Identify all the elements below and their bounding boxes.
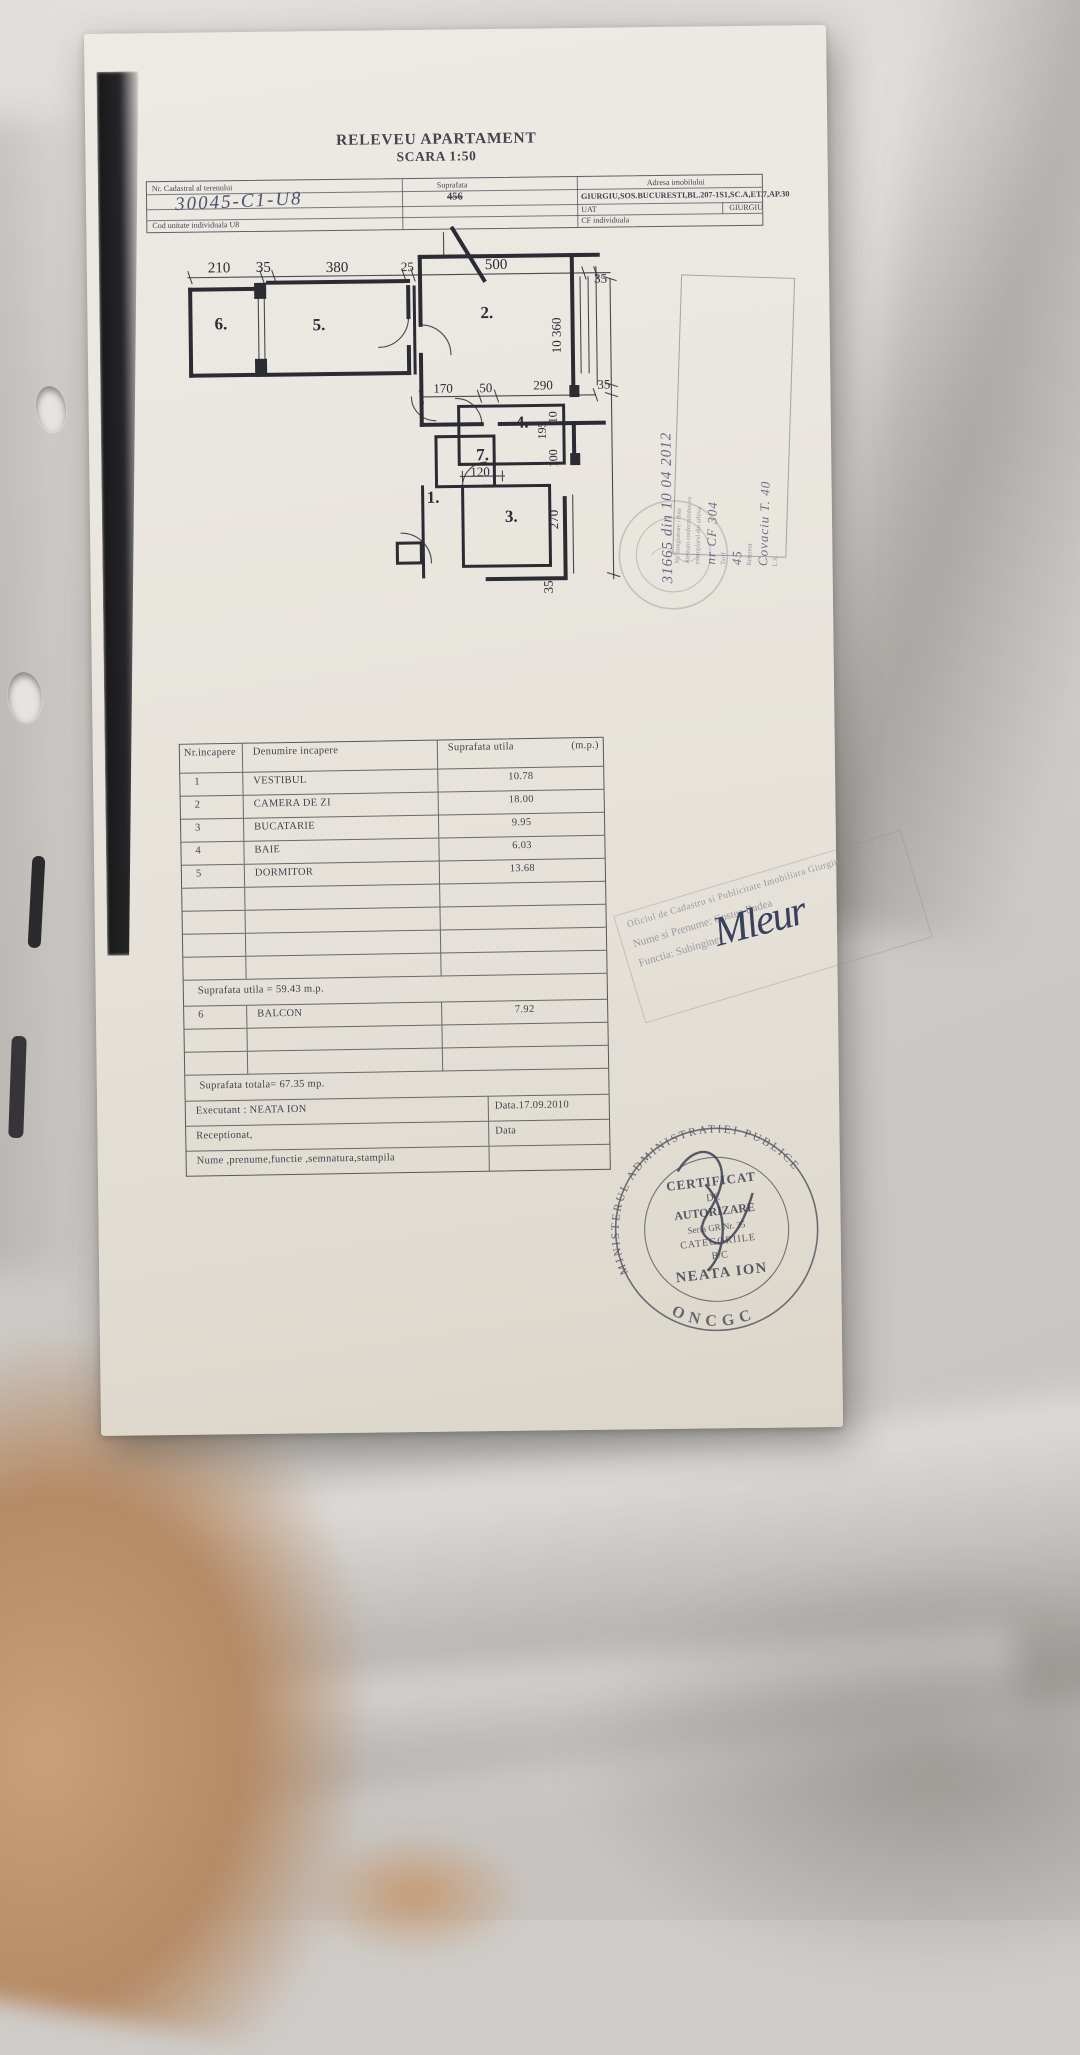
room-label-4: 4. (516, 413, 529, 432)
executant-date: Data.17.09.2010 (489, 1095, 609, 1121)
executant-label: Executant : NEATA ION (186, 1097, 489, 1126)
dim-50: 50 (479, 380, 492, 395)
table-line (147, 213, 762, 222)
room-area-table: Nr.incapere Denumire incapere Suprafata … (179, 737, 611, 1177)
cell-nr: 3 (181, 819, 244, 842)
dim-120: 120 (470, 464, 490, 479)
dim-380: 380 (326, 260, 349, 276)
dim-10-360: 10 360 (548, 317, 563, 353)
cell-nr: 4 (181, 842, 244, 865)
adresa-value: GIURGIU,SOS.BUCURESTI,BL.207-1S1,SC.A,ET… (581, 189, 789, 201)
document-sheet: RELEVEU APARTAMENT SCARA 1:50 Nr. Cadast… (84, 25, 843, 1436)
table-line (577, 177, 579, 227)
floor-plan: 210 35 380 25 500 35 6. 5. 2. 10 360 35 … (181, 222, 627, 707)
dim-35-d: 35 (541, 580, 556, 593)
dim-500: 500 (485, 257, 508, 273)
cell-name: CAMERA DE ZI (244, 793, 439, 818)
table-line (402, 179, 404, 229)
dim-270: 270 (546, 510, 561, 530)
cell-nr: 1 (180, 773, 243, 796)
suprafata-label: Suprafata (437, 180, 468, 189)
reception-stamp-box: Nr. inregistrare / data Atestam conformi… (672, 274, 795, 557)
cell-name: VESTIBUL (243, 770, 438, 795)
round-stamp: MINISTERUL ADMINISTRATIEI PUBLICE ONCGC … (586, 1098, 848, 1360)
table-line (722, 202, 723, 213)
header-area: Suprafata utila (448, 741, 514, 768)
header-name: Denumire incapere (243, 741, 438, 772)
bedsheet-background: RELEVEU APARTAMENT SCARA 1:50 Nr. Cadast… (0, 0, 1080, 1920)
skin-patch (300, 1830, 530, 1960)
cell-area: 7.92 (442, 1000, 607, 1025)
dim-35-a: 35 (256, 260, 271, 276)
cell-nr: 6 (184, 1006, 247, 1029)
svg-text:ONCGC: ONCGC (667, 1293, 759, 1336)
cell-area: 9.95 (439, 813, 604, 838)
cell-area: 6.03 (439, 836, 604, 861)
dim-290: 290 (533, 377, 553, 392)
room-label-6: 6. (214, 314, 227, 333)
cell-nr: 5 (182, 865, 245, 888)
reception-annotation: 31665 din 10 04 2012 Nr. inregistrare / … (635, 274, 878, 562)
room-label-1: 1. (427, 488, 440, 507)
cell-name: BALCON (247, 1002, 442, 1027)
room-label-2: 2. (480, 303, 493, 322)
footer-label: Nume ,prenume,functie ,semnatura,stampil… (187, 1147, 490, 1176)
dim-10: 10 (546, 411, 560, 423)
cell-area: 10.78 (438, 767, 603, 792)
nr-cadastral-handwritten: 30045-C1-U8 (175, 188, 303, 216)
uat-label: UAT (581, 205, 597, 214)
fabric-fold (560, 1560, 1080, 1980)
receptionat-label: Receptionat, (186, 1122, 489, 1151)
room-label-7: 7. (476, 445, 489, 464)
dim-170: 170 (433, 381, 453, 396)
suprafata-value: 456 (447, 191, 463, 202)
dim-210: 210 (208, 260, 231, 276)
dim-100: 100 (546, 449, 560, 467)
dim-35-c: 35 (597, 377, 610, 392)
room-label-5: 5. (312, 315, 325, 334)
cell-area: 13.68 (440, 859, 605, 884)
dim-25: 25 (401, 259, 414, 274)
title-line2: SCARA 1:50 (256, 147, 616, 168)
header-nr: Nr.incapere (180, 744, 243, 773)
room-label-3: 3. (505, 507, 518, 526)
cell-name: BUCATARIE (244, 816, 439, 841)
cell-area: 18.00 (439, 790, 604, 815)
adresa-label: Adresa imobilului (647, 177, 705, 187)
cell-name: BAIE (244, 839, 439, 864)
header-unit: (m.p.) (571, 740, 599, 766)
binder-spine-shadow (96, 71, 149, 955)
uat-value: GIURGIU (729, 203, 763, 212)
document-title: RELEVEU APARTAMENT SCARA 1:50 (256, 128, 616, 169)
cell-nr: 2 (181, 796, 244, 819)
dim-35-b: 35 (594, 271, 607, 286)
round-stamp-line7: NEATA ION (675, 1260, 769, 1287)
cell-name: DORMITOR (245, 862, 440, 887)
round-stamp-arc-bottom: ONCGC (667, 1293, 759, 1336)
